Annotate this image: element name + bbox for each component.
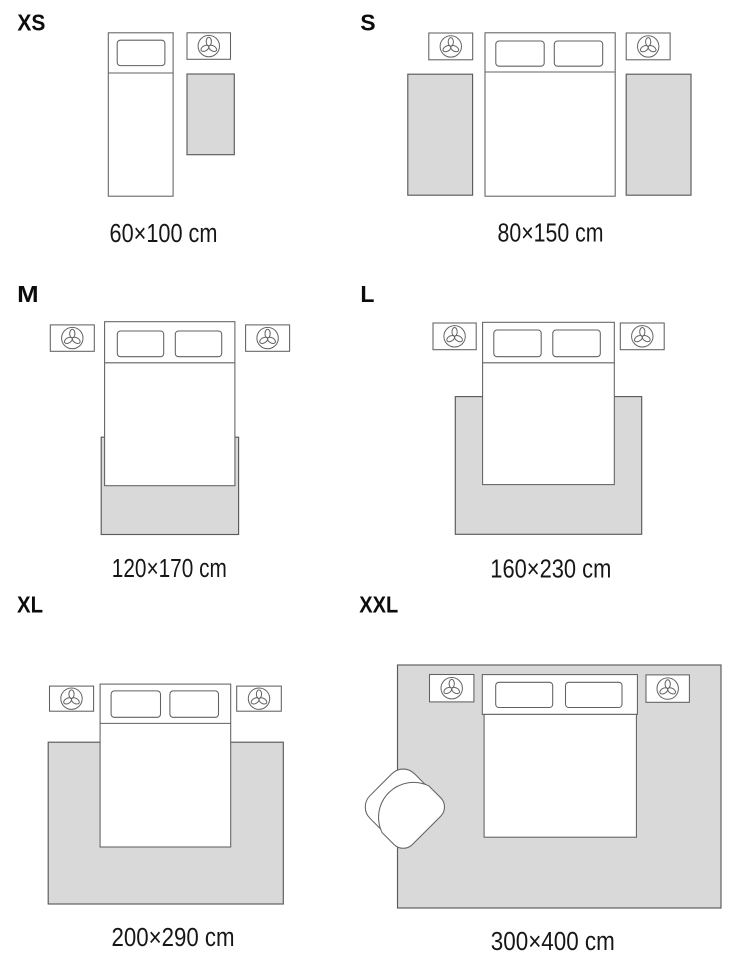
svg-text:XXL: XXL: [359, 592, 398, 618]
svg-text:60×100 cm: 60×100 cm: [110, 220, 218, 248]
svg-text:S: S: [360, 9, 375, 35]
svg-text:80×150 cm: 80×150 cm: [498, 220, 604, 248]
svg-text:M: M: [17, 281, 39, 307]
svg-text:120×170 cm: 120×170 cm: [112, 555, 227, 583]
svg-text:200×290 cm: 200×290 cm: [112, 924, 235, 952]
svg-text:160×230 cm: 160×230 cm: [490, 555, 611, 583]
svg-text:L: L: [360, 281, 374, 307]
svg-text:XL: XL: [17, 592, 43, 618]
svg-text:300×400 cm: 300×400 cm: [491, 928, 615, 956]
svg-text:XS: XS: [17, 9, 45, 35]
